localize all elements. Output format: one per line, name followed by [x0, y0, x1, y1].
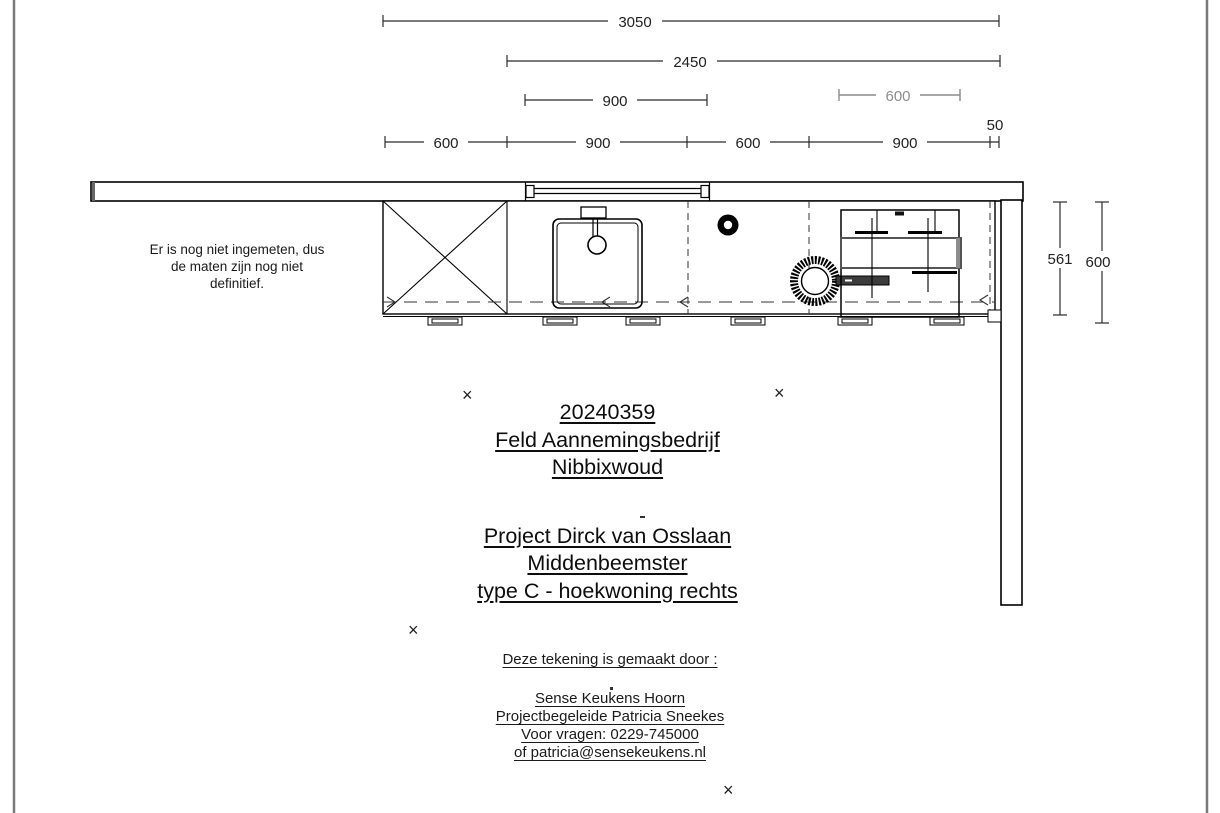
dimension-line-depth-561: 561 [1040, 202, 1080, 315]
pan-handle [836, 276, 889, 285]
stray-dot [640, 516, 645, 518]
dimension-line-depth-600: 600 [1078, 202, 1118, 323]
faucet-base [581, 207, 606, 218]
client-company: Feld Aannemingsbedrijf [375, 427, 840, 455]
cabinet-run-outline [383, 201, 995, 314]
order-number: 20240359 [375, 399, 840, 427]
client-city: Nibbixwoud [375, 454, 840, 482]
dim-label-seg4: 900 [892, 135, 917, 152]
note-line: de maten zijn nog niet [87, 258, 387, 275]
project-house-type: type C - hoekwoning rechts [375, 578, 840, 606]
cross-marker: × [462, 386, 473, 404]
credit-phone: Voor vragen: 0229-745000 [430, 726, 790, 744]
dim-label-total: 3050 [618, 14, 651, 31]
cabinet-end-notch [988, 310, 1001, 322]
socket-symbol [718, 215, 739, 236]
drawing-page: 3050 2450 900 600 [0, 0, 1220, 813]
dim-label-seg5: 50 [987, 117, 1004, 134]
project-title-block: 20240359 Feld Aannemingsbedrijf Nibbixwo… [375, 399, 840, 605]
credit-company: Sense Keukens Hoorn [430, 690, 790, 708]
dim-label-seg2: 900 [585, 135, 610, 152]
cross-marker: × [723, 781, 734, 799]
credit-email: of patricia@sensekeukens.nl [430, 744, 790, 762]
dim-label-run: 2450 [673, 54, 706, 71]
cross-marker: × [408, 621, 419, 639]
note-line: Er is nog niet ingemeten, dus [87, 241, 387, 258]
dimension-line-run-2450: 2450 [507, 52, 1000, 71]
stray-dot [610, 687, 613, 690]
dim-label-seg3: 600 [735, 135, 760, 152]
measurement-note: Er is nog niet ingemeten, dus de maten z… [87, 241, 387, 292]
dim-label-window: 900 [602, 93, 627, 110]
project-name: Project Dirck van Osslaan [375, 523, 840, 551]
dimension-line-total-3050: 3050 [383, 12, 999, 31]
dim-label-depth-inner: 561 [1047, 251, 1072, 268]
dimension-line-window-900: 900 [525, 91, 707, 110]
dim-label-hob: 600 [885, 88, 910, 105]
drawing-credit-block: Deze tekening is gemaakt door : Sense Ke… [430, 651, 790, 762]
faucet-spout [588, 236, 606, 254]
project-location: Middenbeemster [375, 550, 840, 578]
cross-marker: × [774, 384, 785, 402]
dimension-line-segments: 600 900 600 900 50 [385, 117, 1003, 152]
dim-label-depth-total: 600 [1085, 254, 1110, 271]
dim-label-seg1: 600 [433, 135, 458, 152]
dimension-line-hob-600: 600 [839, 86, 960, 105]
control-mark [895, 212, 904, 216]
credit-heading: Deze tekening is gemaakt door : [430, 651, 790, 669]
wall-right [1001, 200, 1022, 605]
credit-contact: Projectbegeleide Patricia Sneekes [430, 708, 790, 726]
worktop-wall-top [91, 182, 1023, 201]
note-line: definitief. [87, 275, 387, 292]
plinth-feet [428, 317, 964, 325]
